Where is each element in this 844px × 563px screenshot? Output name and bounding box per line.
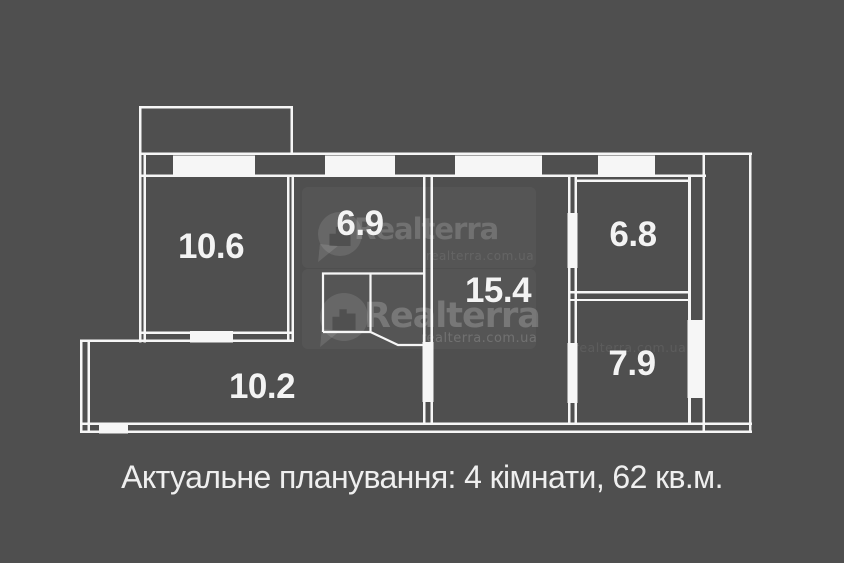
room-label-7-9: 7.9	[608, 344, 655, 384]
room-label-10-6: 10.6	[178, 227, 244, 267]
closet-outline	[323, 274, 423, 346]
room-label-6-9: 6.9	[336, 204, 383, 244]
interior-walls	[140, 176, 691, 423]
balcony-outline	[139, 106, 293, 154]
loggia-walls	[703, 153, 752, 433]
room-label-10-2: 10.2	[229, 367, 295, 407]
floorplan-image: Realterra realterra.com.ua Realterra rea…	[0, 0, 844, 563]
room-label-15-4: 15.4	[465, 271, 531, 311]
caption-text: Актуальне планування: 4 кімнати, 62 кв.м…	[0, 459, 844, 496]
window-openings	[173, 155, 655, 174]
room-label-6-8: 6.8	[609, 215, 656, 255]
